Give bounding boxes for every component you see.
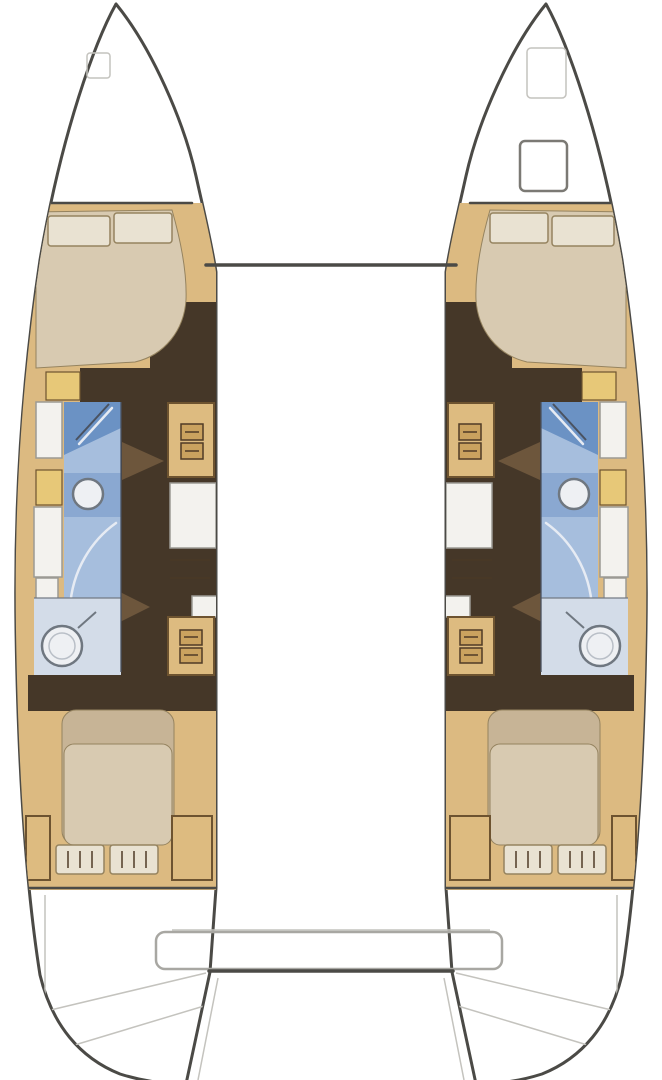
port-hull: [14, 4, 218, 1080]
foredeck-hatch: [520, 141, 567, 191]
catamaran-floorplan: [0, 0, 662, 1080]
floorplan-canvas: [0, 0, 662, 1080]
